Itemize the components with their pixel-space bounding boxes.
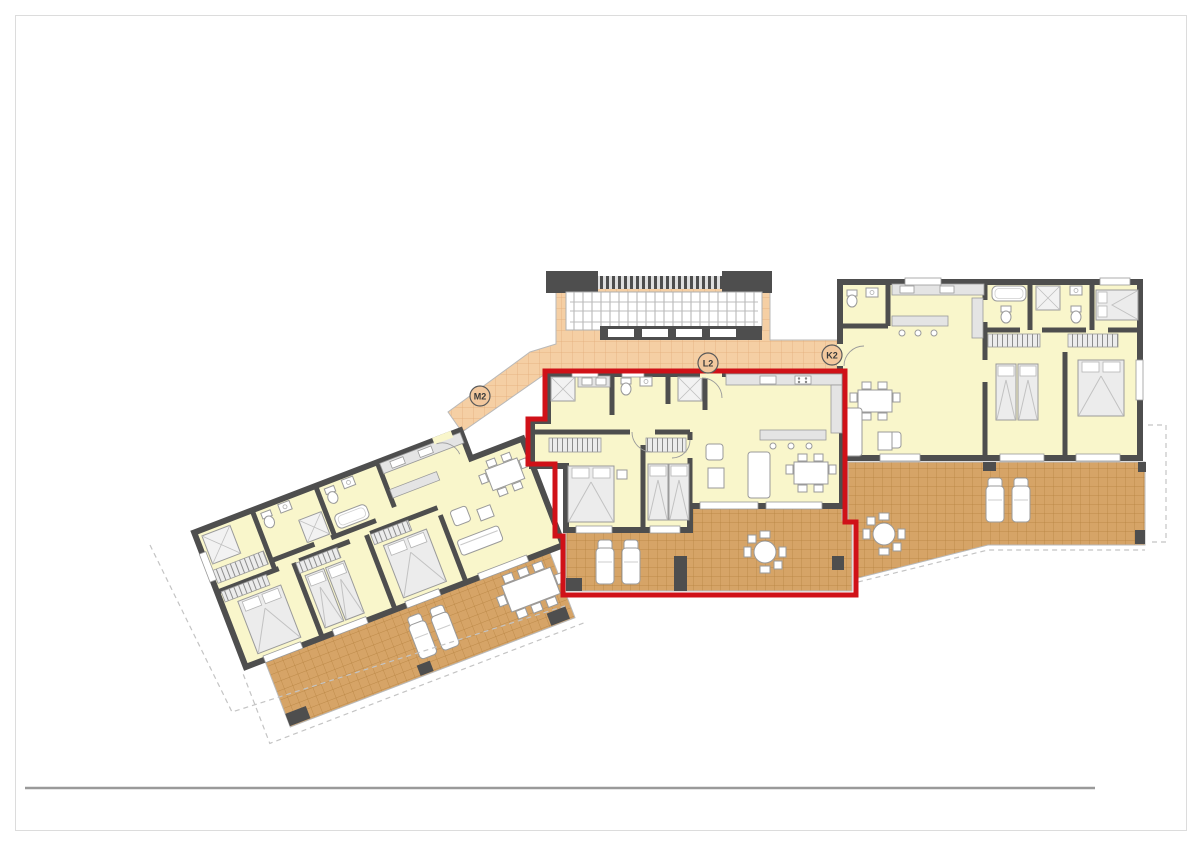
floor-plan-canvas: M2 L2 K2 [0, 0, 1200, 848]
apartment-k2 [837, 278, 1166, 582]
unit-label-k2: K2 [822, 345, 842, 365]
sun-lounger-icon [596, 540, 614, 584]
apartment-l2 [528, 370, 856, 595]
sofa-icon [748, 452, 770, 498]
nightstand [617, 470, 627, 479]
coffee-table-icon [708, 468, 724, 488]
sun-lounger-icon [1012, 478, 1030, 522]
l2-vanity [578, 376, 610, 387]
toilet-icon [621, 378, 631, 395]
k2-bedroom-top-right [1096, 290, 1138, 320]
single-bed-icon [996, 364, 1016, 420]
single-bed-icon [1018, 364, 1038, 420]
wardrobe [646, 438, 686, 452]
wardrobe [1068, 334, 1118, 347]
wardrobe [549, 438, 601, 452]
stair-pillar-left [546, 271, 598, 293]
toilet-icon [847, 290, 857, 307]
bathtub-icon [992, 286, 1026, 301]
sun-lounger-icon [986, 478, 1004, 522]
double-bed-icon [568, 466, 614, 522]
staircase [546, 271, 772, 340]
page: M2 L2 K2 [0, 0, 1200, 848]
unit-label-m2-text: M2 [474, 392, 487, 402]
unit-label-l2-text: L2 [703, 359, 714, 369]
shower-icon [1036, 286, 1060, 310]
armchair-icon [706, 444, 723, 460]
sink-icon [640, 377, 652, 386]
single-bed-icon [669, 464, 689, 520]
shower-icon [678, 377, 702, 401]
shower-icon [551, 377, 575, 401]
unit-label-k2-text: K2 [826, 351, 838, 361]
unit-label-m2: M2 [470, 386, 490, 406]
stair-pillar-right [722, 271, 772, 293]
sink-icon [866, 288, 878, 297]
coffee-table-icon [878, 432, 892, 450]
wardrobe [988, 334, 1040, 347]
double-bed-icon [1078, 360, 1124, 416]
sun-lounger-icon [622, 540, 640, 584]
single-bed-icon [648, 464, 668, 520]
sink-icon [1070, 286, 1082, 295]
toilet-icon [1001, 306, 1011, 323]
toilet-icon [1071, 306, 1081, 323]
unit-label-l2: L2 [698, 353, 718, 373]
